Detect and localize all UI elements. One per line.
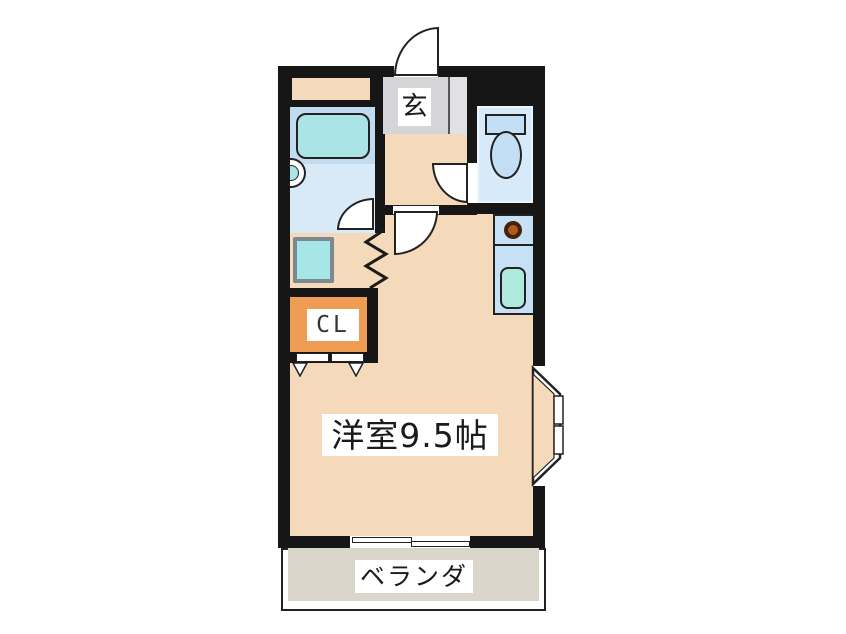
entrance-step: [448, 77, 467, 134]
closet-door-arrow-left-icon: [292, 362, 308, 377]
washing-machine-pan: [293, 237, 334, 283]
closet-top-wall: [278, 288, 378, 297]
entrance-door-arc: [394, 27, 439, 76]
kitchen-sink: [500, 267, 526, 309]
toilet-bottom-wall: [467, 203, 545, 214]
toilet-bowl: [490, 131, 522, 179]
wall-right-upper: [533, 66, 545, 366]
closet-door-panel-right: [331, 353, 364, 362]
entrance-side-shelf: [292, 78, 370, 100]
main-room-label-text: 洋室9.5帖: [331, 419, 488, 452]
entrance-label: 玄: [398, 88, 431, 126]
sliding-window-pane-right: [411, 541, 470, 547]
toilet-left-wall: [467, 106, 477, 163]
main-room-label: 洋室9.5帖: [322, 414, 498, 456]
wall-left: [278, 66, 290, 548]
toilet-room-floor: [477, 106, 533, 203]
wall-bottom-segment-left: [278, 536, 350, 548]
sliding-window-pane-left: [352, 537, 412, 543]
hall-wall-segment-b: [438, 205, 477, 215]
bay-window: [531, 360, 567, 490]
entrance-label-text: 玄: [401, 94, 427, 120]
toilet-doorway-gap: [467, 163, 477, 203]
balcony-label-text: ベランダ: [360, 564, 468, 589]
closet-label: CL: [307, 309, 359, 341]
kitchen-counter: [493, 214, 533, 315]
floor-plan: 玄 CL 洋室9.5帖: [0, 0, 846, 634]
accordion-partition-icon: [360, 228, 390, 290]
closet-label-text: CL: [316, 314, 350, 337]
closet-door-panel-left: [296, 353, 329, 362]
wall-above-toilet: [467, 66, 545, 106]
wall-bottom-segment-right: [470, 536, 545, 548]
bathtub: [296, 113, 370, 159]
balcony-label: ベランダ: [355, 560, 473, 593]
stove-burner-icon: [504, 221, 522, 239]
closet-door-arrow-right-icon: [348, 362, 364, 377]
kitchen-counter-divider: [495, 244, 533, 246]
